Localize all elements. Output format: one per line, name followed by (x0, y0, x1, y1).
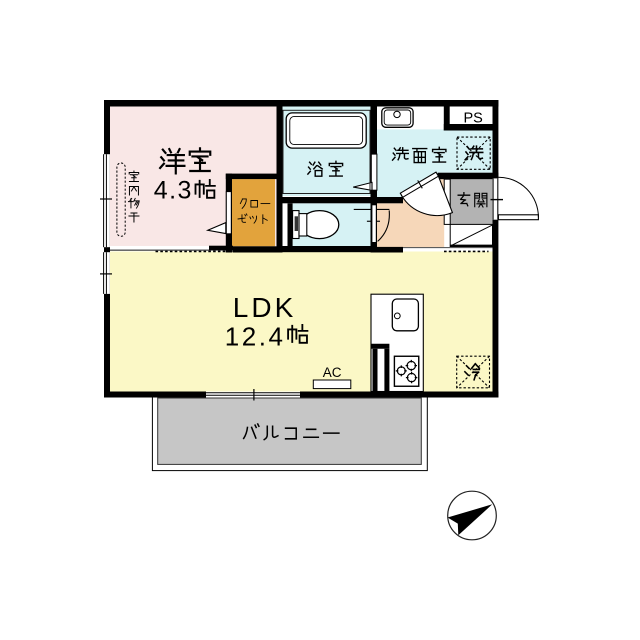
svg-text:AC: AC (323, 365, 342, 380)
svg-text:LDK: LDK (233, 292, 296, 323)
svg-text:12.4: 12.4 (225, 322, 286, 352)
svg-text:4.3: 4.3 (154, 177, 193, 205)
svg-text:PS: PS (464, 110, 483, 126)
